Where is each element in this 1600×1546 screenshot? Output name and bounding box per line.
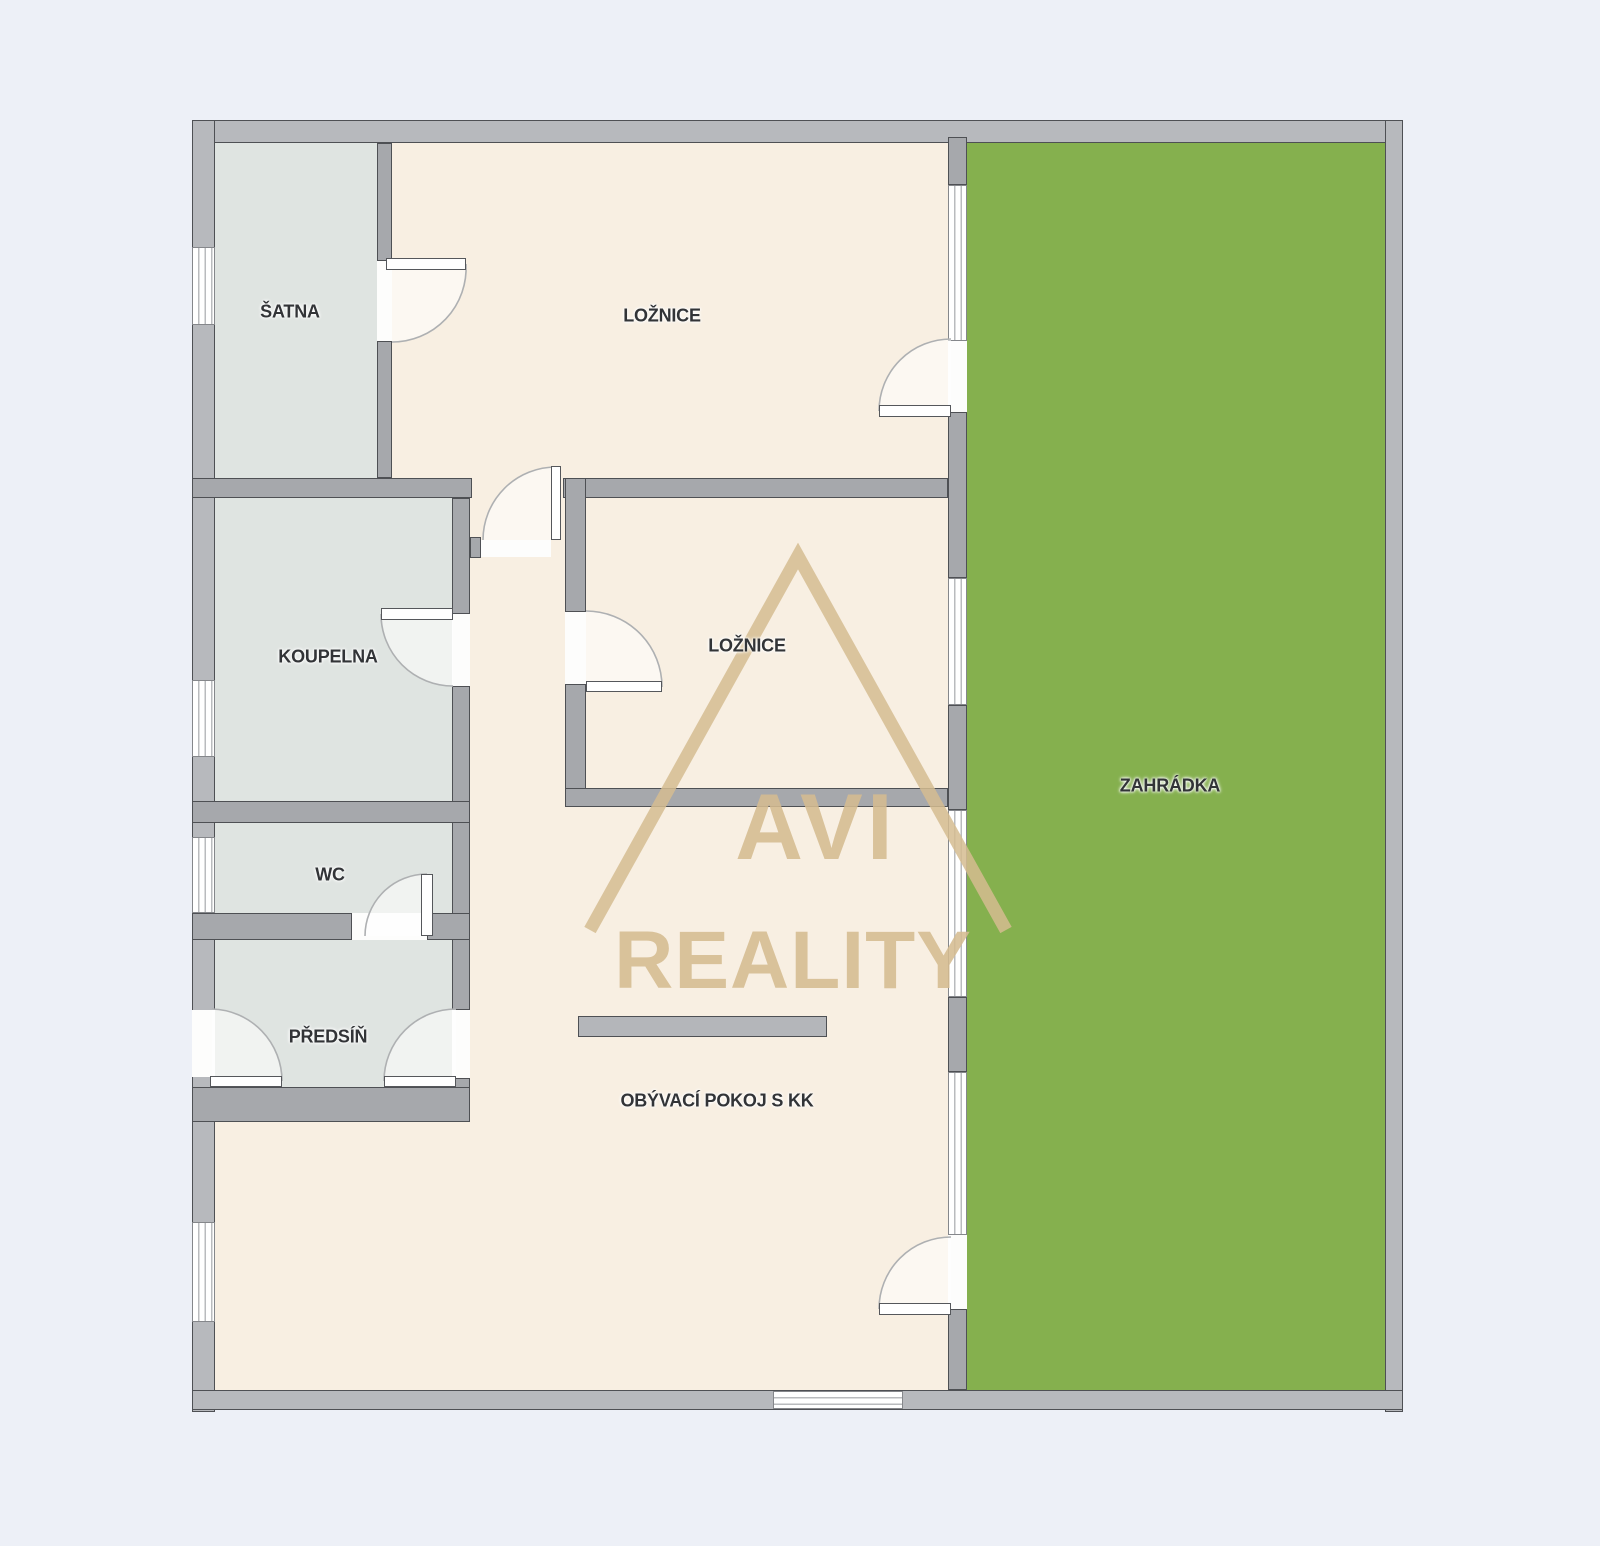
door-opening-predsin-east bbox=[452, 1010, 470, 1078]
wall-koupelna-wc bbox=[192, 801, 470, 823]
door-opening-koupelna bbox=[452, 614, 470, 686]
door-leaf-loznice-mid bbox=[586, 681, 662, 692]
wall-wc-predsin-left bbox=[192, 913, 352, 940]
window-loznice-top-east bbox=[948, 185, 967, 341]
room-label-wc: WC bbox=[315, 865, 345, 886]
door-opening-loznice-mid bbox=[565, 612, 586, 684]
wall-exterior-right bbox=[1385, 120, 1403, 1412]
floor-living-main bbox=[470, 478, 948, 1390]
kitchen-counter bbox=[578, 1016, 827, 1037]
room-label-obyvaci: OBÝVACÍ POKOJ S KK bbox=[620, 1091, 813, 1112]
wall-loznice2-bottom bbox=[565, 788, 948, 807]
door-leaf-corridor bbox=[551, 466, 561, 540]
room-label-koupelna: KOUPELNA bbox=[278, 647, 377, 668]
window-living-south bbox=[773, 1391, 903, 1409]
wall-corridor-tab bbox=[470, 537, 481, 558]
window-living-east-a bbox=[948, 810, 967, 997]
window-living-east-b bbox=[948, 1072, 967, 1235]
door-leaf-koupelna bbox=[381, 608, 453, 620]
wall-wc-predsin-right bbox=[427, 913, 470, 940]
wall-column-right-b bbox=[452, 686, 470, 1010]
door-opening-entrance bbox=[192, 1010, 215, 1077]
wall-loznice2-left-a bbox=[565, 478, 586, 612]
wall-predsin-bottom bbox=[192, 1087, 470, 1122]
door-leaf-wc bbox=[421, 874, 433, 936]
floor-zahradka bbox=[965, 139, 1387, 1392]
room-label-satna: ŠATNA bbox=[260, 302, 320, 323]
floor-living-left bbox=[215, 1122, 470, 1390]
door-opening-corridor bbox=[481, 540, 551, 557]
wall-h1-right bbox=[563, 478, 948, 498]
window-wc-west bbox=[192, 837, 215, 913]
door-leaf-entrance bbox=[210, 1076, 282, 1087]
wall-garden-a bbox=[948, 137, 967, 185]
wall-satna-right-b bbox=[377, 341, 392, 478]
window-koupelna-west bbox=[192, 680, 215, 757]
room-label-predsin: PŘEDSÍŇ bbox=[289, 1027, 368, 1048]
door-leaf-garden-bottom bbox=[879, 1303, 951, 1315]
room-label-loznice-mid: LOŽNICE bbox=[708, 636, 786, 657]
window-living-west bbox=[192, 1222, 215, 1322]
wall-column-right-a bbox=[452, 498, 470, 614]
door-opening-wc bbox=[352, 913, 427, 940]
room-label-zahradka: ZAHRÁDKA bbox=[1120, 776, 1220, 797]
door-opening-garden-top bbox=[948, 341, 967, 412]
floor-predsin bbox=[215, 940, 452, 1087]
wall-garden-c bbox=[948, 705, 967, 810]
floor-plan-canvas: AVI REALITY ŠATNA LOŽNICE KOUPELNA LOŽNI… bbox=[0, 0, 1600, 1546]
door-opening-garden-bottom bbox=[948, 1235, 967, 1309]
wall-h1-left bbox=[192, 478, 472, 498]
wall-garden-b bbox=[948, 412, 967, 578]
wall-garden-pillar bbox=[948, 997, 967, 1072]
door-opening-satna bbox=[377, 261, 392, 341]
wall-exterior-top bbox=[192, 120, 1403, 143]
window-satna-west bbox=[192, 247, 215, 325]
door-leaf-garden-top bbox=[879, 405, 951, 417]
room-label-loznice-top: LOŽNICE bbox=[623, 306, 701, 327]
wall-satna-right-a bbox=[377, 143, 392, 261]
door-leaf-predsin-east bbox=[384, 1076, 456, 1087]
window-loznice-mid-east bbox=[948, 578, 967, 705]
wall-garden-d bbox=[948, 1309, 967, 1390]
door-leaf-satna bbox=[386, 258, 466, 270]
